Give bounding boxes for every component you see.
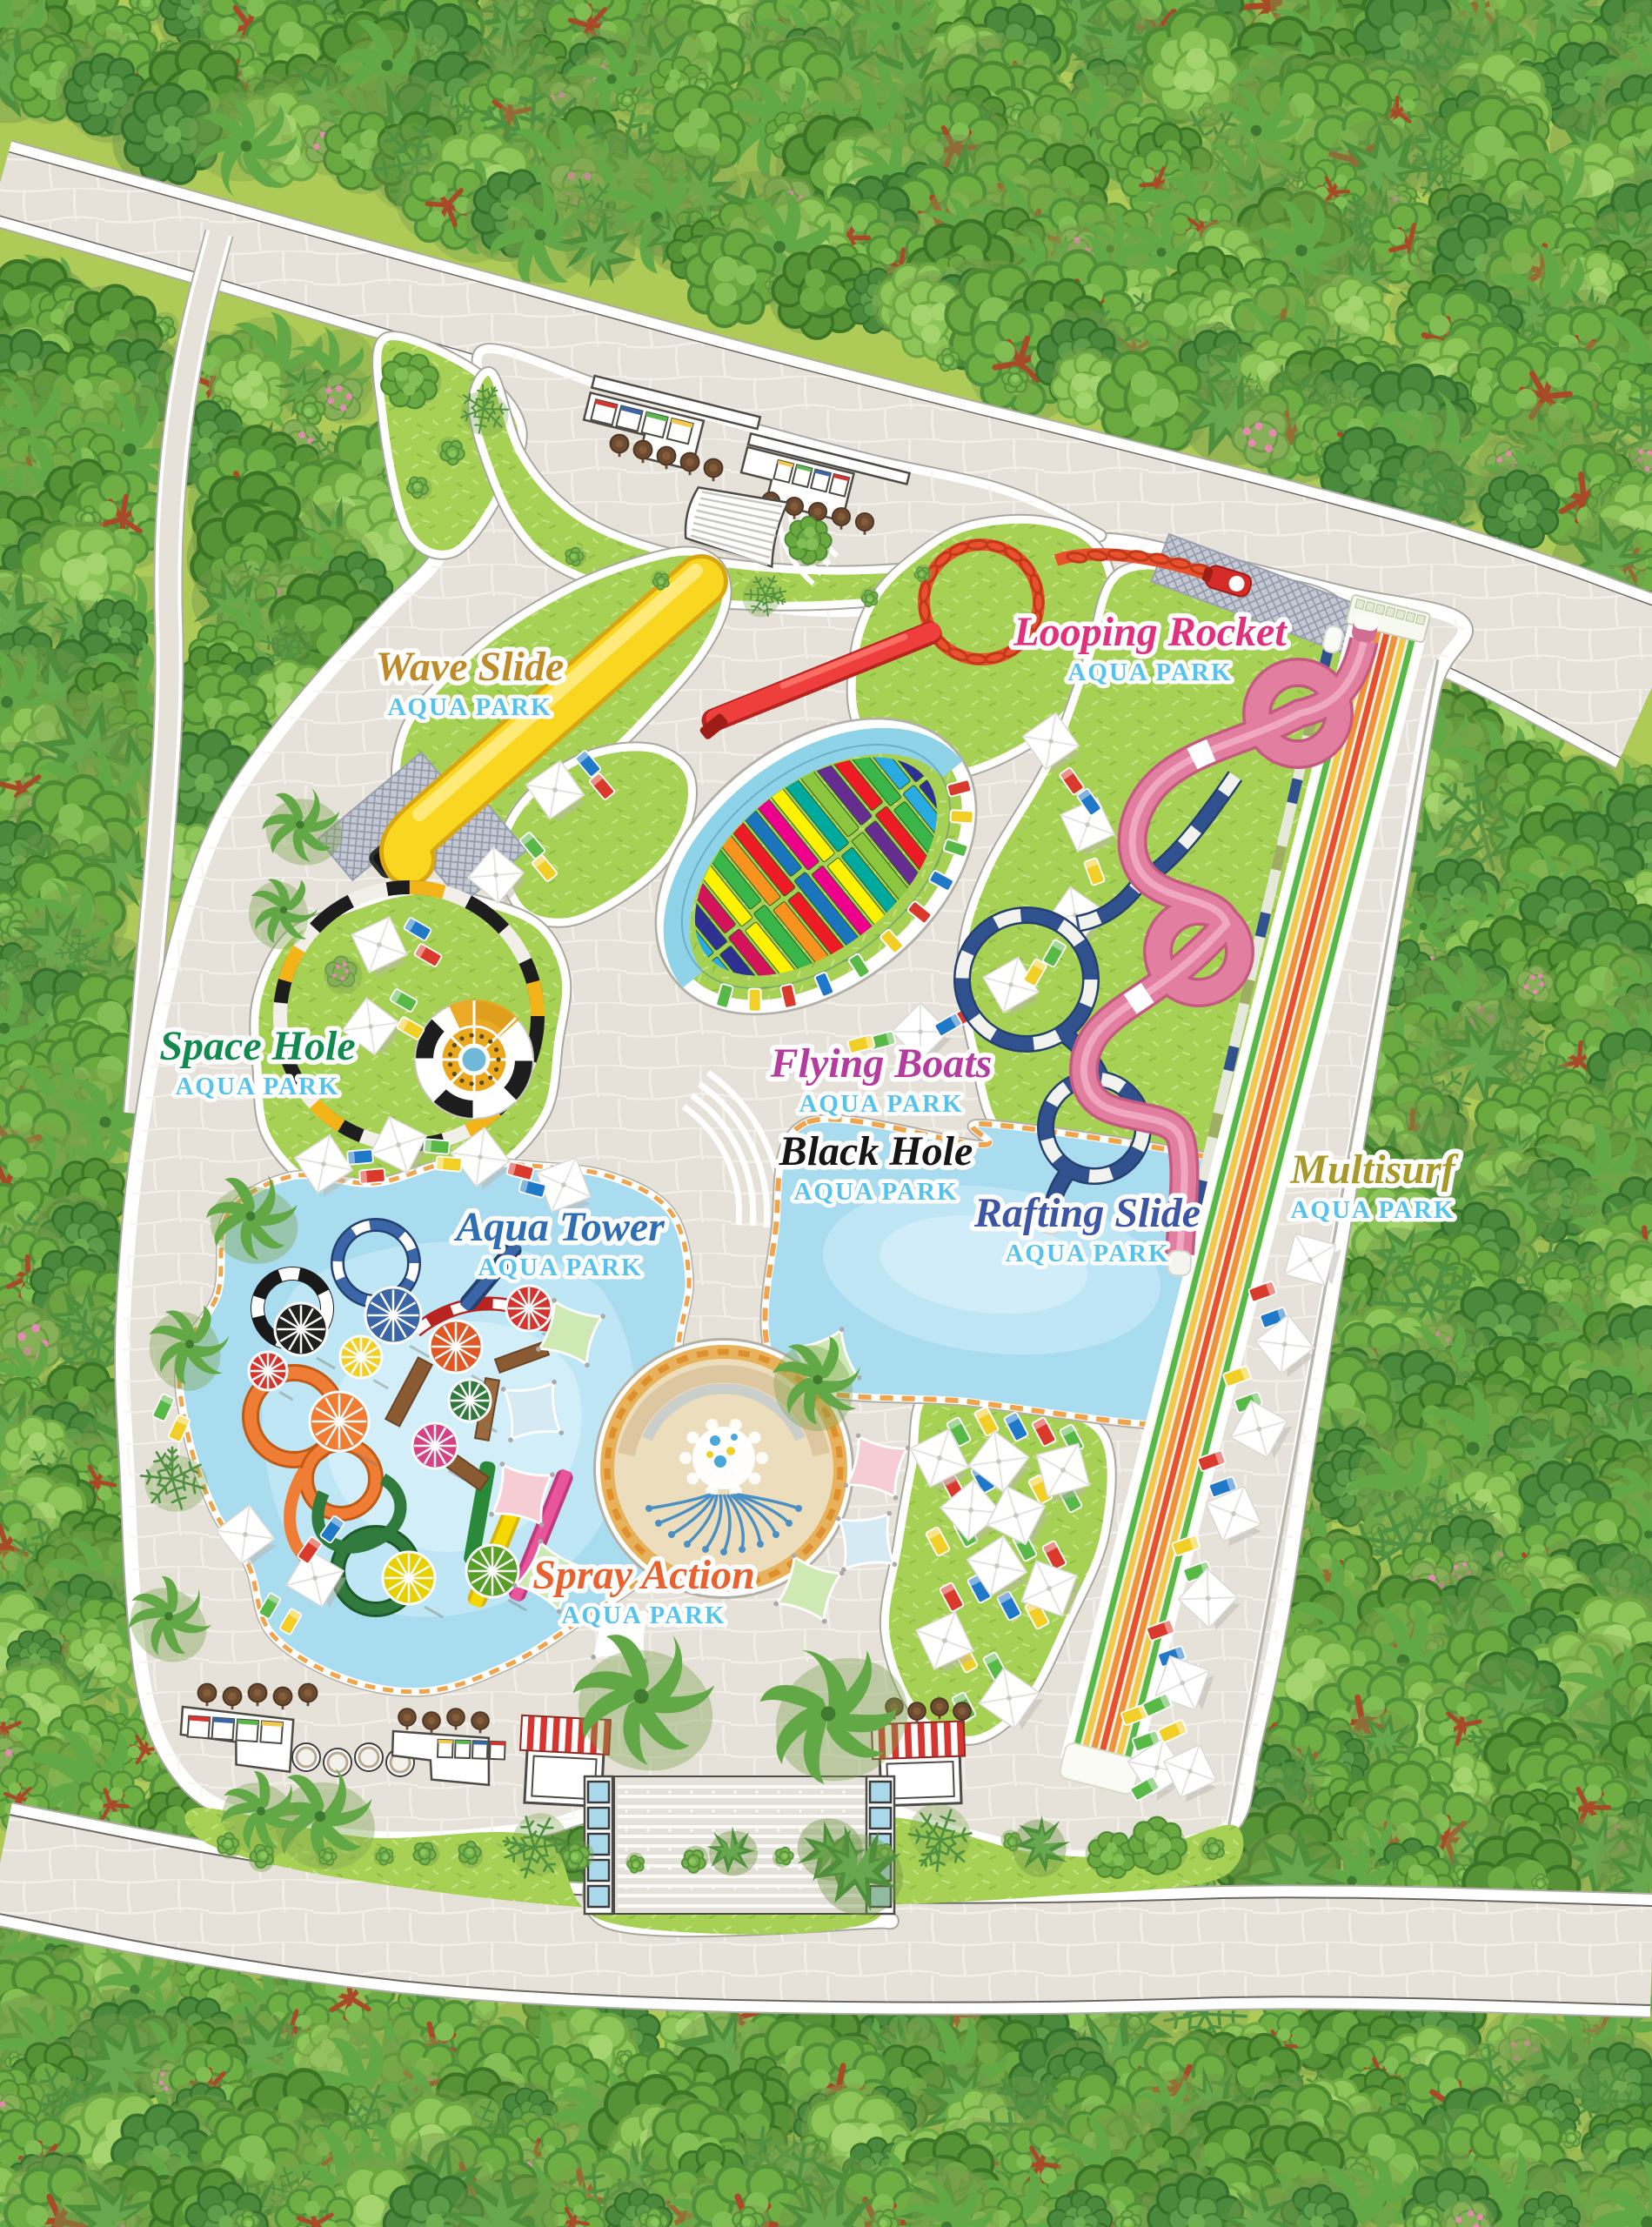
svg-text:AQUA PARK: AQUA PARK (387, 693, 552, 721)
svg-text:AQUA PARK: AQUA PARK (175, 1073, 339, 1100)
svg-text:AQUA PARK: AQUA PARK (799, 1090, 963, 1118)
svg-text:Black Hole: Black Hole (779, 1128, 973, 1174)
svg-text:Spray Action: Spray Action (532, 1552, 755, 1598)
svg-text:Rafting Slide: Rafting Slide (973, 1190, 1201, 1236)
svg-text:Wave Slide: Wave Slide (376, 644, 564, 690)
svg-text:AQUA PARK: AQUA PARK (1067, 659, 1232, 686)
svg-text:Multisurf: Multisurf (1289, 1147, 1458, 1193)
svg-text:AQUA PARK: AQUA PARK (793, 1178, 958, 1206)
svg-text:AQUA PARK: AQUA PARK (561, 1602, 726, 1629)
svg-text:Flying Boats: Flying Boats (770, 1040, 993, 1087)
svg-text:Space Hole: Space Hole (159, 1023, 355, 1069)
svg-text:AQUA PARK: AQUA PARK (478, 1254, 642, 1281)
svg-text:Aqua Tower: Aqua Tower (453, 1204, 665, 1250)
svg-text:AQUA PARK: AQUA PARK (1005, 1240, 1169, 1267)
svg-text:Looping Rocket: Looping Rocket (1013, 609, 1287, 655)
svg-text:AQUA PARK: AQUA PARK (1290, 1196, 1455, 1224)
